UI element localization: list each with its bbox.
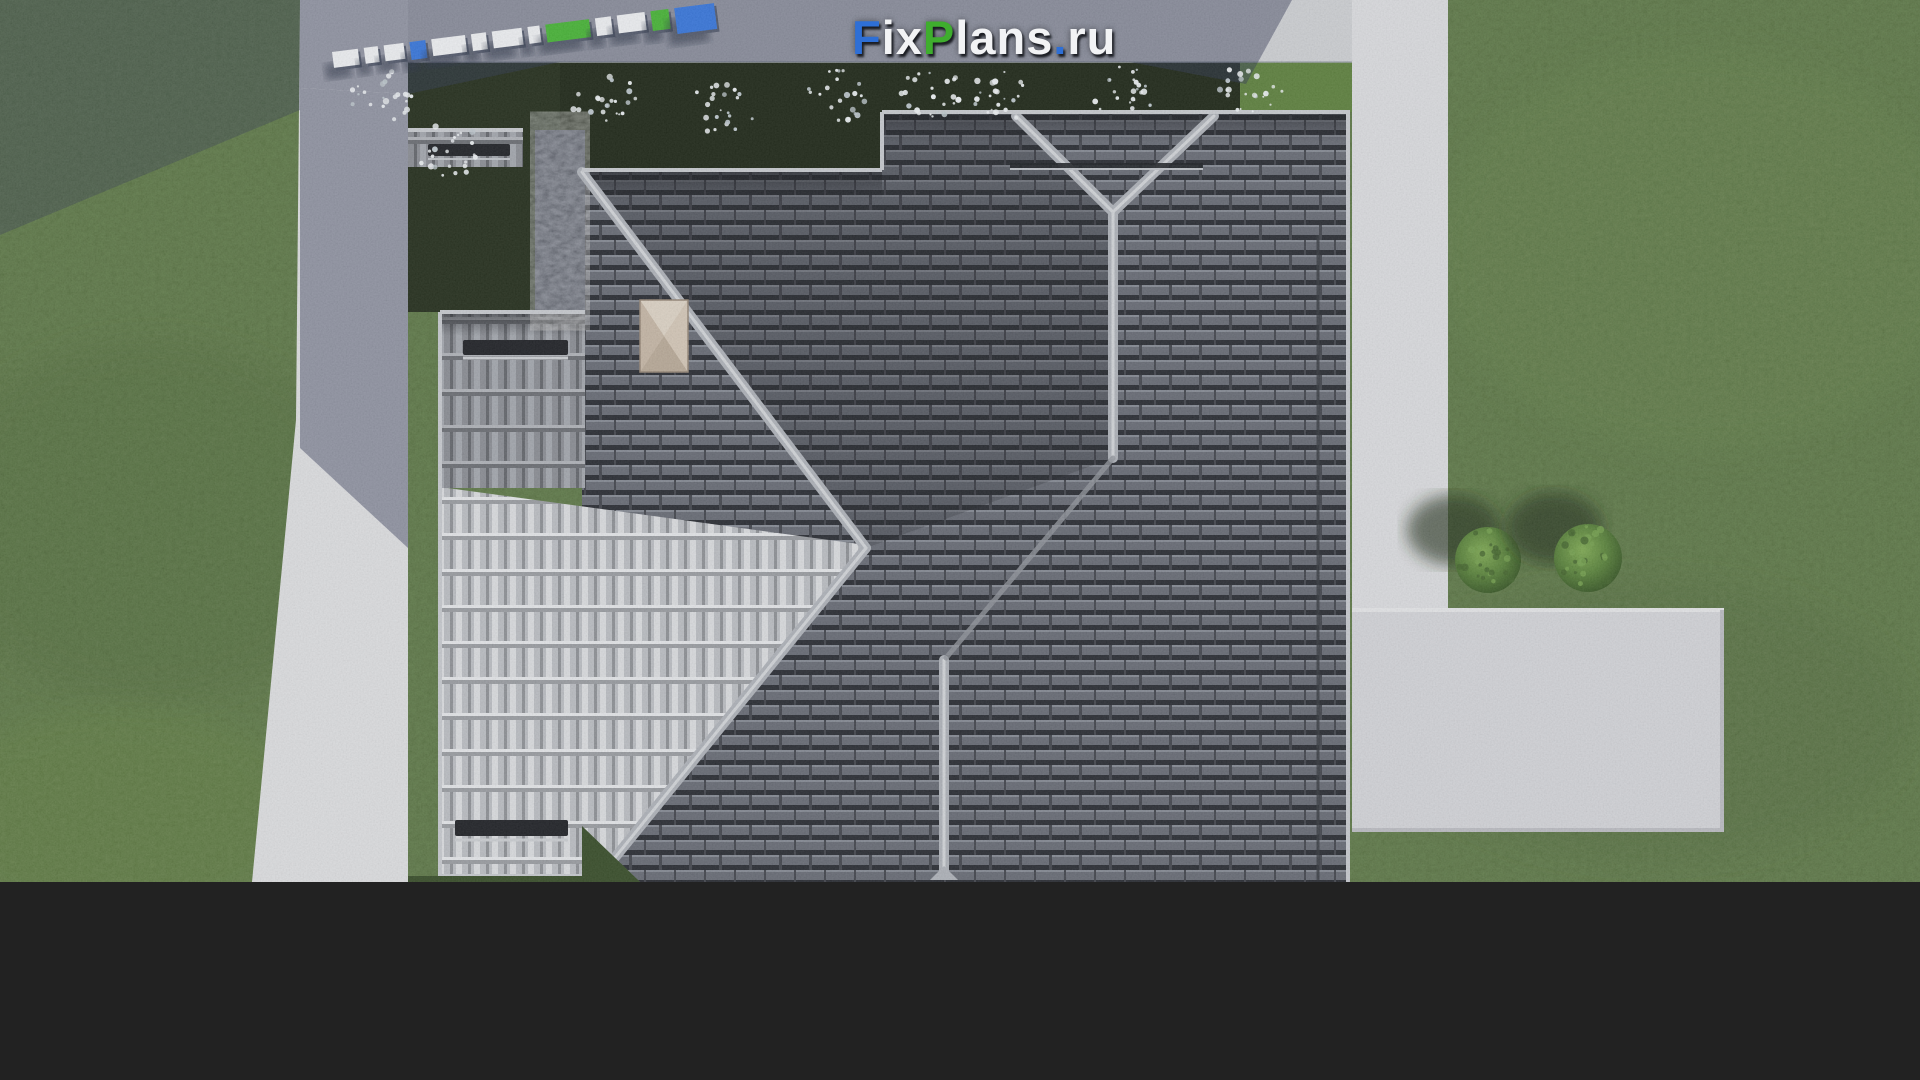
render-viewport: FixPlans.ru	[0, 0, 1920, 882]
watermark-segment: .	[1053, 10, 1067, 65]
scene-svg	[0, 0, 1920, 882]
render-grain	[0, 0, 1920, 882]
site-watermark: FixPlans.ru	[852, 10, 1116, 65]
watermark-segment: F	[852, 10, 882, 65]
watermark-segment: lans	[955, 10, 1053, 65]
watermark-segment: ru	[1067, 10, 1116, 65]
watermark-segment: P	[923, 10, 955, 65]
watermark-segment: ix	[882, 10, 923, 65]
